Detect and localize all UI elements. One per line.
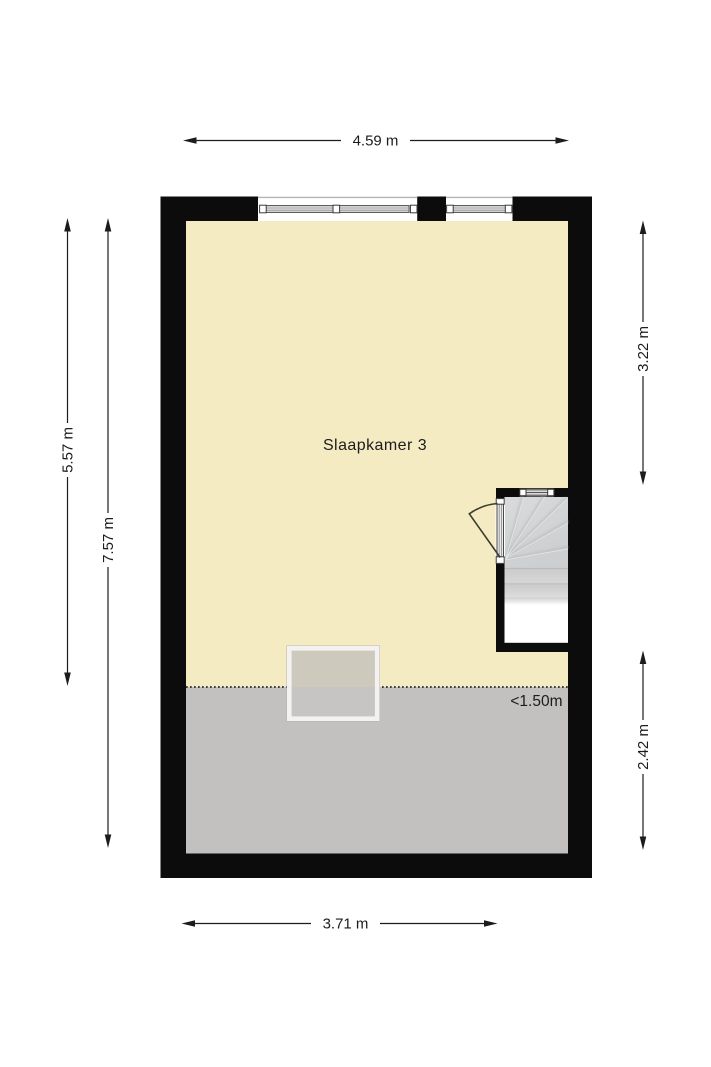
svg-text:Slaapkamer 3: Slaapkamer 3: [323, 437, 427, 454]
svg-text:4.59 m: 4.59 m: [353, 133, 399, 150]
svg-text:5.57 m: 5.57 m: [60, 427, 77, 473]
svg-text:3.22 m: 3.22 m: [635, 326, 652, 372]
svg-text:3.71 m: 3.71 m: [323, 916, 369, 933]
svg-text:7.57 m: 7.57 m: [100, 517, 117, 563]
svg-text:<1.50m: <1.50m: [510, 693, 562, 710]
svg-text:2.42 m: 2.42 m: [635, 724, 652, 770]
